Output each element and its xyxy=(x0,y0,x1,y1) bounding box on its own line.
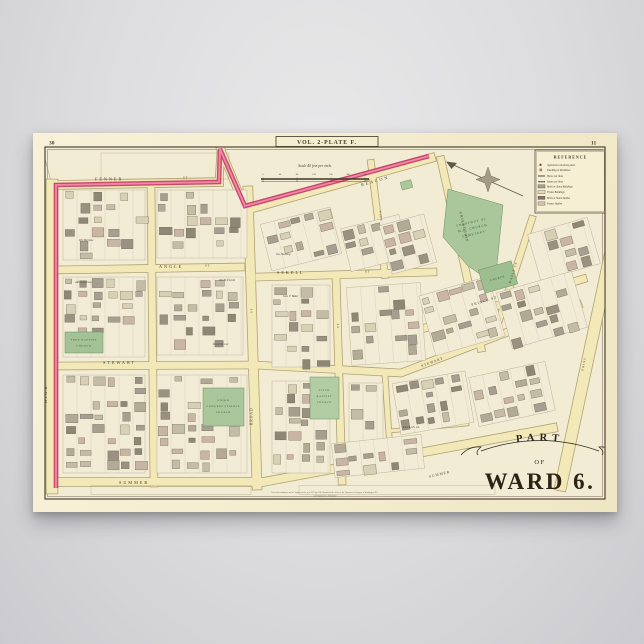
building xyxy=(301,311,311,317)
building xyxy=(451,374,460,382)
building xyxy=(173,292,184,298)
building xyxy=(203,463,210,472)
building xyxy=(428,417,435,424)
label-sekell-st: ST xyxy=(365,270,371,274)
ward-of-text: OF xyxy=(534,459,545,466)
building xyxy=(379,452,386,461)
ward-part-textpath: PART xyxy=(515,432,564,445)
building xyxy=(93,424,105,432)
building xyxy=(287,455,293,460)
building xyxy=(275,288,287,295)
label-fenner: FENNER xyxy=(95,177,123,182)
building xyxy=(488,386,497,395)
building xyxy=(216,291,222,298)
building xyxy=(175,377,182,382)
building xyxy=(507,406,519,417)
building xyxy=(303,394,310,403)
owner-name: Wm B. Everett xyxy=(219,279,235,282)
building xyxy=(276,408,283,415)
building xyxy=(94,377,106,386)
building xyxy=(201,451,210,460)
building xyxy=(93,303,101,308)
building xyxy=(66,279,72,284)
block-outline xyxy=(63,375,145,473)
building xyxy=(120,425,129,435)
building xyxy=(121,239,133,248)
building xyxy=(228,292,237,300)
building xyxy=(230,218,240,228)
building xyxy=(137,281,146,291)
building xyxy=(159,390,170,398)
building xyxy=(351,385,359,391)
building xyxy=(302,346,309,351)
building xyxy=(301,420,308,426)
building xyxy=(499,371,509,381)
building xyxy=(334,444,346,453)
label-mid-st: ST xyxy=(336,322,340,328)
label-pallas-alley: PALLAS AL xyxy=(403,426,420,429)
building xyxy=(80,241,88,251)
building xyxy=(230,227,239,233)
owner-name: Wm Barstow xyxy=(79,239,94,242)
building xyxy=(94,292,102,300)
city-block xyxy=(63,375,148,473)
svg-text:CHURCH: CHURCH xyxy=(76,345,91,348)
building xyxy=(107,402,117,407)
building xyxy=(122,304,132,309)
label-high: HIGH xyxy=(43,385,48,403)
building xyxy=(161,403,168,411)
building xyxy=(215,228,225,234)
brick-buildings-swatch xyxy=(538,185,545,188)
building xyxy=(188,414,195,422)
building xyxy=(174,229,184,236)
building xyxy=(217,449,227,459)
building xyxy=(189,438,196,443)
building xyxy=(409,380,419,389)
building xyxy=(202,290,211,296)
building xyxy=(336,458,349,466)
building xyxy=(109,229,120,237)
building xyxy=(301,288,313,298)
building xyxy=(158,204,165,211)
building xyxy=(416,416,424,424)
building xyxy=(64,291,71,300)
block-outline xyxy=(63,190,145,260)
building xyxy=(517,394,524,401)
building xyxy=(391,462,399,470)
building xyxy=(94,205,102,210)
building xyxy=(203,327,215,335)
street-angle xyxy=(54,267,241,270)
svg-text:BAPTIST: BAPTIST xyxy=(317,395,333,398)
label-broad-st: ST xyxy=(250,307,254,313)
building xyxy=(366,336,373,343)
street-inner-vertical xyxy=(151,187,154,483)
building xyxy=(159,291,171,296)
building xyxy=(121,401,128,406)
city-block xyxy=(63,190,149,260)
building xyxy=(107,205,115,210)
building xyxy=(94,192,102,201)
ward-name-text: WARD 6. xyxy=(485,469,596,494)
building xyxy=(230,378,238,383)
building xyxy=(408,345,416,355)
building xyxy=(92,228,103,237)
building xyxy=(174,315,186,320)
building xyxy=(188,402,200,408)
building xyxy=(108,460,120,470)
building xyxy=(289,407,300,416)
building xyxy=(67,376,75,382)
building xyxy=(363,453,373,459)
building xyxy=(66,305,75,314)
building xyxy=(187,463,198,469)
reference-legend: REFERENCE ✱ represents a business place xyxy=(535,150,606,213)
reference-item: Steam car lines xyxy=(547,181,563,184)
building xyxy=(201,281,210,288)
building xyxy=(317,361,330,367)
building xyxy=(95,415,103,420)
building xyxy=(351,326,360,333)
building xyxy=(188,305,197,312)
building xyxy=(435,377,444,384)
building xyxy=(80,461,90,467)
building xyxy=(406,448,417,454)
reference-item: Brick or Stone Stables xyxy=(547,197,570,200)
building xyxy=(288,346,296,351)
building xyxy=(108,439,116,444)
reference-title: REFERENCE xyxy=(554,155,588,160)
svg-text:FREE BAPTIST: FREE BAPTIST xyxy=(71,339,97,342)
building xyxy=(289,432,302,441)
building xyxy=(135,388,146,394)
building xyxy=(135,377,142,384)
building xyxy=(317,442,325,450)
building xyxy=(275,334,287,340)
building xyxy=(136,291,143,296)
building xyxy=(121,462,129,469)
building xyxy=(66,426,75,433)
building xyxy=(380,310,392,316)
building xyxy=(275,432,286,440)
building xyxy=(405,310,413,316)
building xyxy=(217,241,224,246)
building xyxy=(66,191,74,198)
building xyxy=(186,192,194,198)
reference-item: Brick or Stone Buildings xyxy=(547,185,573,188)
building xyxy=(302,325,313,332)
building xyxy=(93,402,100,410)
dwelling-swatch xyxy=(540,169,543,172)
building xyxy=(202,437,215,443)
building xyxy=(92,278,103,287)
owner-name: Jas. Bowling xyxy=(276,253,291,256)
reference-item: represents a business place xyxy=(547,164,576,167)
building xyxy=(186,328,192,336)
building xyxy=(135,461,148,470)
building xyxy=(366,421,375,429)
owner-name: Alfred Anthony xyxy=(74,281,93,284)
building xyxy=(136,217,149,223)
building xyxy=(65,230,74,237)
brick-stables-swatch xyxy=(538,196,545,199)
building xyxy=(92,316,99,321)
building xyxy=(172,424,184,433)
page-number-left: 30 xyxy=(49,141,55,147)
building xyxy=(187,216,197,226)
building xyxy=(229,427,239,437)
svg-text:CHURCH: CHURCH xyxy=(317,401,332,404)
building xyxy=(317,336,327,341)
svg-text:CONGREGATIONAL: CONGREGATIONAL xyxy=(206,405,240,408)
building xyxy=(80,316,87,321)
building xyxy=(186,228,195,238)
building xyxy=(399,409,408,416)
building xyxy=(66,414,78,423)
building xyxy=(316,430,327,439)
building xyxy=(94,217,101,223)
building xyxy=(80,377,88,385)
label-fenner-st: ST xyxy=(183,176,189,180)
building xyxy=(108,451,119,461)
building xyxy=(201,379,212,384)
building xyxy=(161,194,168,201)
building xyxy=(108,317,120,322)
building xyxy=(391,309,399,319)
building xyxy=(134,437,141,445)
building xyxy=(201,204,208,213)
building xyxy=(65,315,75,323)
building xyxy=(80,253,92,259)
building xyxy=(187,205,195,215)
reference-item: Dwelling or Residence xyxy=(546,169,571,172)
building xyxy=(302,455,310,462)
reference-item: Frame Stables xyxy=(546,203,562,206)
building xyxy=(395,335,407,341)
building xyxy=(348,456,356,462)
city-block xyxy=(272,285,330,369)
city-block xyxy=(157,190,247,258)
building xyxy=(287,394,294,403)
building xyxy=(135,449,142,455)
building xyxy=(109,292,117,298)
building xyxy=(136,425,144,430)
building xyxy=(290,311,296,320)
building xyxy=(123,317,134,325)
building xyxy=(352,313,359,322)
scale-heading: Scale 40 feet per inch. xyxy=(298,164,332,168)
building xyxy=(216,304,224,312)
building xyxy=(120,449,130,455)
building xyxy=(107,279,115,288)
frame-stables-swatch xyxy=(538,202,545,205)
building xyxy=(120,291,132,300)
building xyxy=(159,227,172,235)
building xyxy=(378,286,388,292)
building xyxy=(174,340,185,350)
fifth-baptist-parcel xyxy=(310,377,339,419)
building xyxy=(135,402,146,411)
building xyxy=(66,462,77,467)
reference-item: Frame Buildings xyxy=(546,191,565,194)
building xyxy=(421,379,434,389)
building xyxy=(200,218,211,225)
building xyxy=(121,193,128,201)
building xyxy=(304,443,310,452)
building xyxy=(67,449,74,456)
building xyxy=(289,322,298,331)
svg-text:UNION: UNION xyxy=(217,399,229,402)
free-baptist-parcel xyxy=(65,332,103,353)
building xyxy=(81,203,90,213)
owner-name: Daniel R. Lee xyxy=(212,343,229,346)
imprint-line-1: Entered according to act of Congress in … xyxy=(271,491,379,494)
backdrop: 30 11 VOL. 2-PLATE F. xyxy=(0,0,644,644)
building xyxy=(79,291,87,296)
building xyxy=(172,460,179,469)
label-sekell: SEKELL xyxy=(277,270,305,275)
building xyxy=(79,218,88,224)
reference-item: Horse car lines xyxy=(546,175,563,178)
building xyxy=(365,323,376,332)
svg-text:CHURCH: CHURCH xyxy=(216,411,231,414)
building xyxy=(188,425,196,431)
svg-text:FIFTH: FIFTH xyxy=(319,389,330,392)
building xyxy=(107,239,120,246)
building xyxy=(275,312,288,317)
city-block xyxy=(157,277,243,355)
building xyxy=(80,450,91,455)
city-block xyxy=(346,283,425,366)
label-angle: ANGLE xyxy=(159,264,183,269)
plate-title: VOL. 2-PLATE F. xyxy=(297,140,357,146)
building xyxy=(351,409,363,419)
building xyxy=(474,390,484,400)
building xyxy=(229,302,239,308)
building xyxy=(427,403,436,413)
building xyxy=(393,300,405,310)
building xyxy=(173,242,183,249)
page-number-right: 11 xyxy=(591,141,596,147)
building xyxy=(172,449,183,454)
building xyxy=(108,378,114,387)
building xyxy=(289,419,300,424)
building xyxy=(317,456,324,462)
building xyxy=(174,305,182,311)
label-broad: BROAD xyxy=(250,407,254,425)
building xyxy=(80,414,93,419)
building xyxy=(408,322,419,329)
building xyxy=(123,412,131,421)
building xyxy=(230,451,236,456)
building xyxy=(215,218,227,225)
building xyxy=(408,335,417,345)
building xyxy=(288,385,296,393)
building xyxy=(303,360,310,370)
imprint-line-2: G.M. Hopkins & Co. Philadelphia xyxy=(313,495,336,497)
building xyxy=(274,455,281,464)
building xyxy=(203,316,209,321)
building xyxy=(160,438,168,445)
frame-buildings-swatch xyxy=(538,191,545,194)
owner-name: Geo. F. Baker xyxy=(283,295,299,298)
label-summer: SUMMER xyxy=(119,480,149,485)
building xyxy=(274,300,281,305)
building xyxy=(79,438,85,444)
ward-part-text: PART xyxy=(515,432,564,445)
label-stewart: STEWART xyxy=(103,360,136,365)
building xyxy=(363,464,376,475)
building xyxy=(317,311,328,319)
building xyxy=(161,412,170,420)
building xyxy=(353,350,363,360)
building xyxy=(302,299,309,304)
label-angle-st: ST xyxy=(205,264,211,268)
building xyxy=(426,392,433,398)
building xyxy=(366,386,376,392)
building xyxy=(228,314,236,322)
atlas-map-svg: 30 11 VOL. 2-PLATE F. xyxy=(33,133,617,512)
poster: 30 11 VOL. 2-PLATE F. xyxy=(33,133,617,512)
building xyxy=(158,426,167,436)
building xyxy=(160,315,168,325)
